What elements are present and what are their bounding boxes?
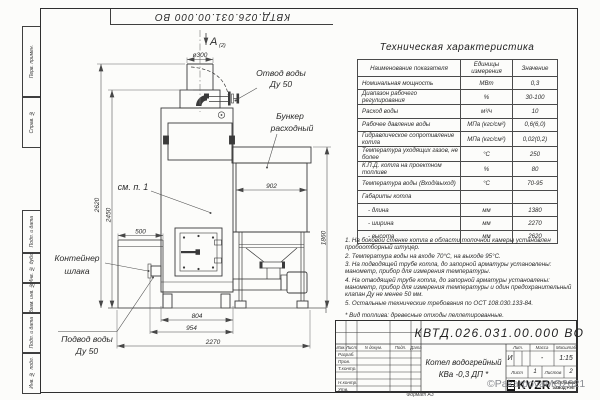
change-col-ndokum: N докум. xyxy=(357,344,390,351)
spec-cell: МПа (кгс/см²) xyxy=(461,132,513,147)
door-handle xyxy=(181,251,198,253)
role-tkontr: Т.контр. xyxy=(336,365,359,372)
dimension-lines xyxy=(101,60,327,347)
callout-hopper-line1: Бункер xyxy=(276,111,304,121)
spec-cell: Рабочее давление воды xyxy=(358,118,461,131)
spec-cell: 70-95 xyxy=(513,177,558,190)
spec-cell: Температура уходящих газов, не более xyxy=(358,147,461,162)
callout-slag-container-line1: Контейнер xyxy=(54,253,99,263)
view-marker: А (2) xyxy=(206,33,226,49)
lit-header: Лит. xyxy=(506,344,530,351)
note-3: 3. На подводящей трубе котла, до запорно… xyxy=(345,261,573,276)
spec-cell: °С xyxy=(461,147,513,162)
lit-value: И xyxy=(506,351,514,366)
spec-cell: 0,6(6,0) xyxy=(513,118,558,131)
hopper-group xyxy=(232,147,311,308)
role-prov: Пров. xyxy=(336,358,359,365)
leader-lines xyxy=(58,88,277,332)
callout-slag-container-line2: шлака xyxy=(64,266,90,276)
dim-500: 500 xyxy=(135,229,146,236)
boiler-foot-right xyxy=(221,294,230,308)
spec-cell: 1380 xyxy=(513,203,558,216)
sheets-label: Листов xyxy=(542,366,564,378)
hopper-funnel xyxy=(246,248,297,262)
spec-cell xyxy=(461,190,513,203)
callout-water-inlet-line1: Подвод воды xyxy=(61,334,113,344)
note-4: 4. На отводящей трубе котла, до запорной… xyxy=(345,277,573,299)
table-row: - длинамм1380 xyxy=(358,203,558,216)
motor-flange xyxy=(281,275,287,290)
sheets-value: 2 xyxy=(564,366,578,378)
outlet-pipe xyxy=(209,97,228,102)
spec-table: Наименование показателя Единицы измерени… xyxy=(357,59,558,244)
note-2: 2. Температура воды на входе 70°С, на вы… xyxy=(345,253,573,260)
scale-header: Масштаб xyxy=(554,344,578,351)
dim-2450: 2450 xyxy=(106,207,113,223)
spec-header-units: Единицы измерения xyxy=(461,60,513,77)
dim-804: 804 xyxy=(192,313,203,320)
dim-1860: 1860 xyxy=(321,230,328,245)
dim-2270: 2270 xyxy=(205,339,221,346)
boiler-body-group xyxy=(148,64,239,308)
funnel-throat xyxy=(267,268,280,279)
dim-2620: 2620 xyxy=(94,197,101,213)
drawing-sheet: Перв. примен. Справ. № Подп. и дата Инв.… xyxy=(0,0,600,400)
ground-line xyxy=(108,303,326,313)
table-row: Температура уходящих газов, не более°С25… xyxy=(358,147,558,162)
table-row: К.П.Д. котла на проектном топливе%80 xyxy=(358,162,558,177)
outlet-flange xyxy=(228,92,231,106)
spec-cell: Гидравлическое сопротивление котла xyxy=(358,132,461,147)
sheet-value: 1 xyxy=(528,366,542,378)
spec-table-section: Техническая характеристика Наименование … xyxy=(357,42,557,244)
table-row: Диапазон рабочего регулирования%30-100 xyxy=(358,90,558,105)
door-latch-top xyxy=(215,240,222,245)
spec-header-value: Значение xyxy=(513,60,558,77)
callout-water-inlet-line2: Ду 50 xyxy=(75,346,98,356)
dim-902: 902 xyxy=(266,183,277,190)
watermark: ©PakarpovaMG2021 xyxy=(487,378,585,390)
spec-header-row: Наименование показателя Единицы измерени… xyxy=(358,60,558,77)
table-row: Гидравлическое сопротивление котлаМПа (к… xyxy=(358,132,558,147)
role-nkontr: Н.контр. xyxy=(336,379,359,386)
auger-tube xyxy=(233,279,281,290)
spec-cell: 2270 xyxy=(513,217,558,230)
table-row: - ширинамм2270 xyxy=(358,217,558,230)
boiler-foot-left xyxy=(163,294,172,308)
fuel-type-note: * Вид топлива: древесные отходы пеллетир… xyxy=(345,312,573,319)
upper-door-hinge-right xyxy=(230,136,235,144)
slag-container-group xyxy=(118,240,163,308)
role-razrab: Разраб. xyxy=(336,351,359,358)
spec-table-title: Техническая характеристика xyxy=(357,42,557,53)
spec-cell: 30-100 xyxy=(513,90,558,105)
see-note-reference: см. п. 1 xyxy=(118,182,149,192)
note-5: 5. Остальные технические требования по О… xyxy=(345,300,573,307)
dim-d300: ø300 xyxy=(193,52,208,59)
spec-cell: Номинальная мощность xyxy=(358,77,461,90)
spec-cell: % xyxy=(461,162,513,177)
hopper-legs xyxy=(239,232,304,301)
callout-water-outlet-line1: Отвод воды xyxy=(256,68,306,78)
spec-cell: °С xyxy=(461,177,513,190)
product-name-line1: Котел водогрейный xyxy=(425,357,501,369)
change-col-izm: Изм. xyxy=(336,344,346,351)
sheet-label: Лист xyxy=(506,366,528,378)
table-row: Номинальная мощностьМВт0,3 xyxy=(358,77,558,90)
scale-value: 1:15 xyxy=(554,351,578,366)
view-marker-ref: (2) xyxy=(219,43,226,49)
spec-header-name: Наименование показателя xyxy=(358,60,461,77)
technical-notes: 1. На боковой стенке котла в области топ… xyxy=(345,237,573,320)
spec-cell: - ширина xyxy=(358,217,461,230)
change-col-podp: Подп. xyxy=(390,344,411,351)
callout-hopper-line2: расходный xyxy=(270,123,314,133)
door-latch-bottom xyxy=(215,258,222,263)
role-utv: Утв. xyxy=(336,386,359,393)
spec-cell: Диапазон рабочего регулирования xyxy=(358,90,461,105)
spec-cell: мм xyxy=(461,203,513,216)
note-1: 1. На боковой стенке котла в области топ… xyxy=(345,237,573,252)
spec-cell: Габариты котла xyxy=(358,190,461,203)
view-marker-label: А xyxy=(209,36,217,48)
spec-cell: - длина xyxy=(358,203,461,216)
spec-cell: Расход воды xyxy=(358,105,461,118)
spec-cell: МВт xyxy=(461,77,513,90)
spec-cell: мм xyxy=(461,217,513,230)
table-row: Температура воды (Вход/выход)°С70-95 xyxy=(358,177,558,190)
table-row: Габариты котла xyxy=(358,190,558,203)
change-col-list: Лист xyxy=(346,344,357,351)
spec-cell xyxy=(513,190,558,203)
funnel-throat-flange xyxy=(261,262,284,268)
hopper-beam xyxy=(239,245,304,248)
hopper-foot-right xyxy=(297,301,308,308)
dim-954: 954 xyxy=(186,325,197,332)
upper-door xyxy=(168,123,232,160)
spec-cell: 80 xyxy=(513,162,558,177)
spec-cell: 250 xyxy=(513,147,558,162)
spec-cell: 0,02(0,2) xyxy=(513,132,558,147)
spec-cell: МПа (кгс/см²) xyxy=(461,118,513,131)
spec-cell: К.П.Д. котла на проектном топливе xyxy=(358,162,461,177)
hopper-lid xyxy=(232,147,311,163)
spec-cell: Температура воды (Вход/выход) xyxy=(358,177,461,190)
hopper-foot-left xyxy=(235,301,246,308)
mass-header: Масса xyxy=(530,344,554,351)
gas-path-dashed xyxy=(191,67,229,101)
spec-cell: 0,3 xyxy=(513,77,558,90)
spec-cell: % xyxy=(461,90,513,105)
door-bolts xyxy=(181,235,214,270)
format-label: Формат А3 xyxy=(390,392,450,398)
title-block-doc-number: КВТД.026.031.00.000 ВО xyxy=(421,321,578,344)
hopper-body xyxy=(236,163,307,232)
water-inlet-fitting xyxy=(151,266,161,276)
table-row: Расход водым³/ч10 xyxy=(358,105,558,118)
spec-cell: м³/ч xyxy=(461,105,513,118)
callout-water-outlet-line2: Ду 50 xyxy=(269,79,292,89)
table-row: Рабочее давление водыМПа (кгс/см²)0,6(6,… xyxy=(358,118,558,131)
product-name-line2: КВа -0,3 ДП * xyxy=(439,369,489,381)
slag-container xyxy=(118,240,163,308)
upper-door-hinge-left xyxy=(164,136,169,144)
spec-cell: 10 xyxy=(513,105,558,118)
mass-value: - xyxy=(530,351,554,366)
change-col-data: Дата xyxy=(411,344,421,351)
